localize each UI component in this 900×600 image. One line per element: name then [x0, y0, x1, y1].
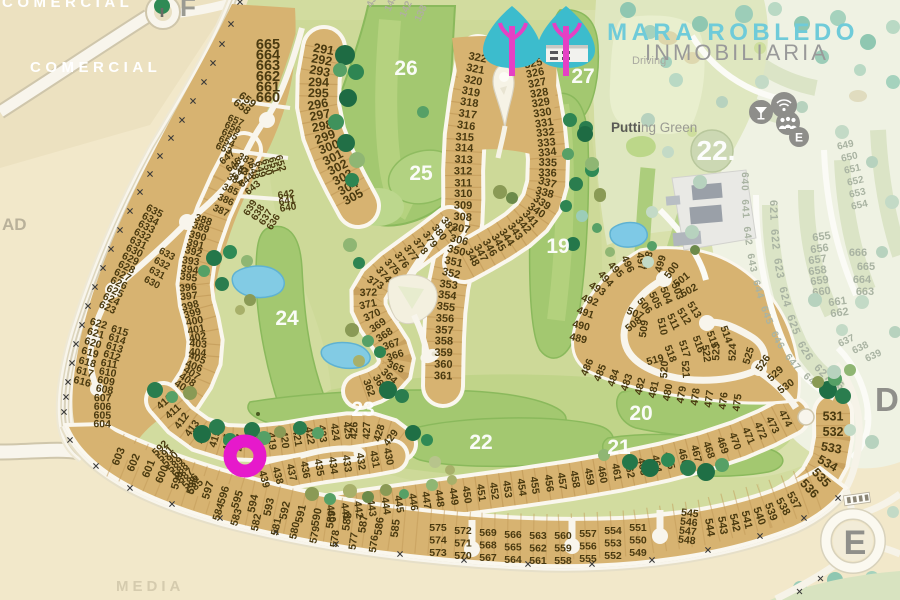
- svg-text:548: 548: [677, 534, 696, 548]
- svg-text:22.: 22.: [697, 135, 736, 166]
- svg-text:361: 361: [434, 370, 453, 382]
- svg-text:476: 476: [717, 391, 731, 410]
- svg-text:571: 571: [454, 538, 472, 550]
- svg-text:433: 433: [340, 454, 354, 473]
- svg-text:570: 570: [454, 550, 472, 562]
- svg-text:524: 524: [727, 343, 739, 361]
- svg-text:531: 531: [823, 410, 844, 424]
- svg-text:26: 26: [394, 57, 417, 80]
- svg-text:578: 578: [328, 529, 342, 548]
- svg-text:453: 453: [500, 480, 514, 499]
- svg-text:566: 566: [504, 529, 522, 541]
- svg-text:19: 19: [546, 235, 569, 258]
- svg-text:Putting Green: Putting Green: [611, 120, 697, 135]
- svg-text:664: 664: [853, 274, 872, 286]
- svg-text:358: 358: [435, 335, 454, 347]
- svg-text:549: 549: [629, 547, 647, 559]
- svg-text:586: 586: [372, 516, 386, 536]
- svg-text:520: 520: [658, 360, 671, 378]
- svg-text:575: 575: [429, 522, 447, 534]
- svg-text:359: 359: [434, 347, 453, 359]
- svg-text:440: 440: [324, 504, 338, 523]
- svg-text:450: 450: [460, 485, 474, 504]
- svg-text:567: 567: [479, 552, 497, 564]
- svg-text:523: 523: [710, 343, 722, 361]
- svg-text:576: 576: [367, 534, 381, 553]
- svg-text:556: 556: [579, 541, 597, 553]
- svg-text:441: 441: [338, 502, 352, 521]
- svg-text:551: 551: [629, 522, 647, 534]
- svg-text:561: 561: [529, 555, 547, 567]
- svg-text:573: 573: [429, 547, 447, 559]
- svg-text:454: 454: [514, 478, 528, 497]
- svg-text:COMERCIAL: COMERCIAL: [30, 59, 161, 76]
- svg-text:E: E: [844, 524, 867, 562]
- svg-text:577: 577: [346, 532, 360, 551]
- svg-text:452: 452: [487, 482, 501, 501]
- svg-text:475: 475: [730, 393, 744, 412]
- svg-text:INMOBILIARIA: INMOBILIARIA: [645, 40, 829, 65]
- svg-text:MEDIA: MEDIA: [116, 578, 184, 595]
- svg-text:568: 568: [479, 540, 497, 552]
- svg-text:442: 442: [351, 500, 365, 519]
- svg-text:565: 565: [504, 542, 522, 554]
- svg-text:477: 477: [702, 389, 716, 408]
- svg-text:312: 312: [454, 166, 472, 178]
- svg-text:447: 447: [419, 491, 433, 510]
- svg-text:563: 563: [529, 530, 547, 542]
- svg-text:555: 555: [579, 553, 597, 565]
- svg-text:449: 449: [446, 487, 460, 506]
- svg-text:434: 434: [326, 456, 340, 475]
- svg-text:552: 552: [604, 550, 622, 562]
- svg-text:604: 604: [93, 418, 111, 430]
- svg-text:666: 666: [849, 247, 867, 259]
- svg-text:574: 574: [429, 535, 447, 547]
- svg-text:558: 558: [554, 555, 572, 567]
- svg-text:559: 559: [554, 543, 572, 555]
- svg-text:569: 569: [479, 527, 497, 539]
- svg-text:25: 25: [409, 162, 433, 185]
- svg-text:553: 553: [604, 538, 622, 550]
- svg-text:AD: AD: [2, 215, 27, 234]
- svg-text:455: 455: [527, 476, 541, 495]
- svg-text:557: 557: [579, 528, 597, 540]
- svg-text:310: 310: [454, 188, 472, 200]
- svg-text:24: 24: [275, 307, 299, 330]
- svg-text:451: 451: [474, 483, 488, 502]
- svg-text:662: 662: [830, 306, 850, 320]
- svg-text:562: 562: [529, 543, 547, 555]
- svg-text:426: 426: [348, 421, 360, 439]
- svg-text:665: 665: [857, 261, 875, 273]
- svg-text:532: 532: [823, 425, 844, 439]
- svg-text:456: 456: [542, 474, 556, 493]
- svg-text:457: 457: [555, 472, 569, 491]
- svg-text:22: 22: [469, 431, 492, 454]
- svg-text:313: 313: [454, 154, 473, 167]
- svg-text:585: 585: [389, 519, 403, 539]
- svg-text:21: 21: [607, 436, 631, 459]
- svg-text:27: 27: [571, 65, 594, 88]
- svg-text:F: F: [180, 0, 196, 22]
- svg-text:20: 20: [629, 402, 652, 425]
- svg-text:23: 23: [351, 398, 374, 421]
- svg-text:550: 550: [629, 535, 647, 547]
- svg-text:521: 521: [679, 360, 692, 379]
- svg-text:478: 478: [688, 387, 702, 406]
- svg-text:E: E: [795, 131, 803, 145]
- svg-text:554: 554: [604, 525, 622, 537]
- svg-text:564: 564: [504, 554, 522, 566]
- svg-text:660: 660: [256, 90, 280, 106]
- svg-text:424: 424: [328, 423, 342, 442]
- svg-text:360: 360: [434, 359, 453, 371]
- svg-text:448: 448: [432, 489, 446, 508]
- svg-text:560: 560: [554, 530, 572, 542]
- svg-text:COMERCIAL: COMERCIAL: [2, 0, 133, 11]
- svg-text:572: 572: [454, 525, 472, 537]
- svg-text:509: 509: [637, 319, 651, 338]
- svg-text:444: 444: [379, 496, 393, 515]
- svg-text:D: D: [875, 381, 899, 418]
